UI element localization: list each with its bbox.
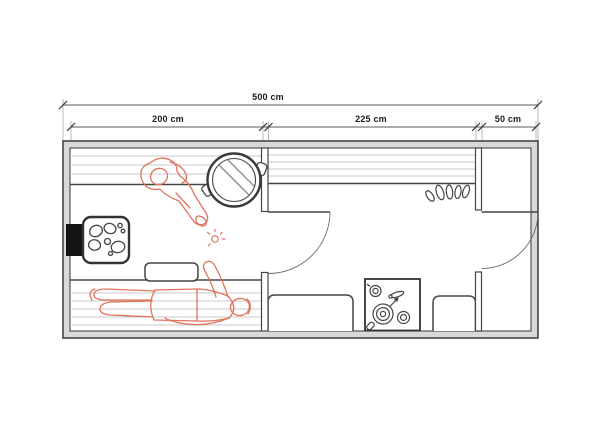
chimney-block [66,224,82,256]
dimension-label-total: 500 cm [252,92,284,102]
dimension-lines [59,99,542,141]
headrest [145,263,198,281]
sauna-door-swing-arc [269,212,331,274]
person-leg-upper [94,289,155,300]
sauna-heater [83,217,129,263]
counter-left [268,295,353,331]
steam-sparkle-icon [207,229,225,246]
counter-right [433,296,476,331]
dimension-label-section-3: 50 cm [495,114,522,124]
hook-icon [446,185,454,200]
partition-sauna-top [262,148,269,212]
hook-icon [424,189,436,202]
hook-icon [454,185,462,199]
partition-entrance-top [476,148,482,210]
partition-entrance-bottom [476,272,482,331]
dimension-label-section-2: 225 cm [355,114,387,124]
person-feet [194,214,208,228]
dimension-line-total [59,101,542,109]
coat-hooks [424,184,471,202]
floor-plan-drawing: 500 cm 200 cm 225 cm 50 cm [0,0,600,438]
sauna-door [268,212,330,274]
dimension-line-sections [67,123,540,131]
hook-icon [461,184,471,198]
entrance-door-swing-arc [482,212,539,269]
partition-sauna-bottom [262,273,269,332]
dimension-label-section-1: 200 cm [152,114,184,124]
sitting-person-figure [141,158,208,228]
person-torso [151,289,234,321]
floor-plan-canvas: 500 cm 200 cm 225 cm 50 cm [0,0,600,438]
entrance-door [482,212,539,269]
gas-stove [365,279,420,331]
hook-icon [434,184,445,200]
